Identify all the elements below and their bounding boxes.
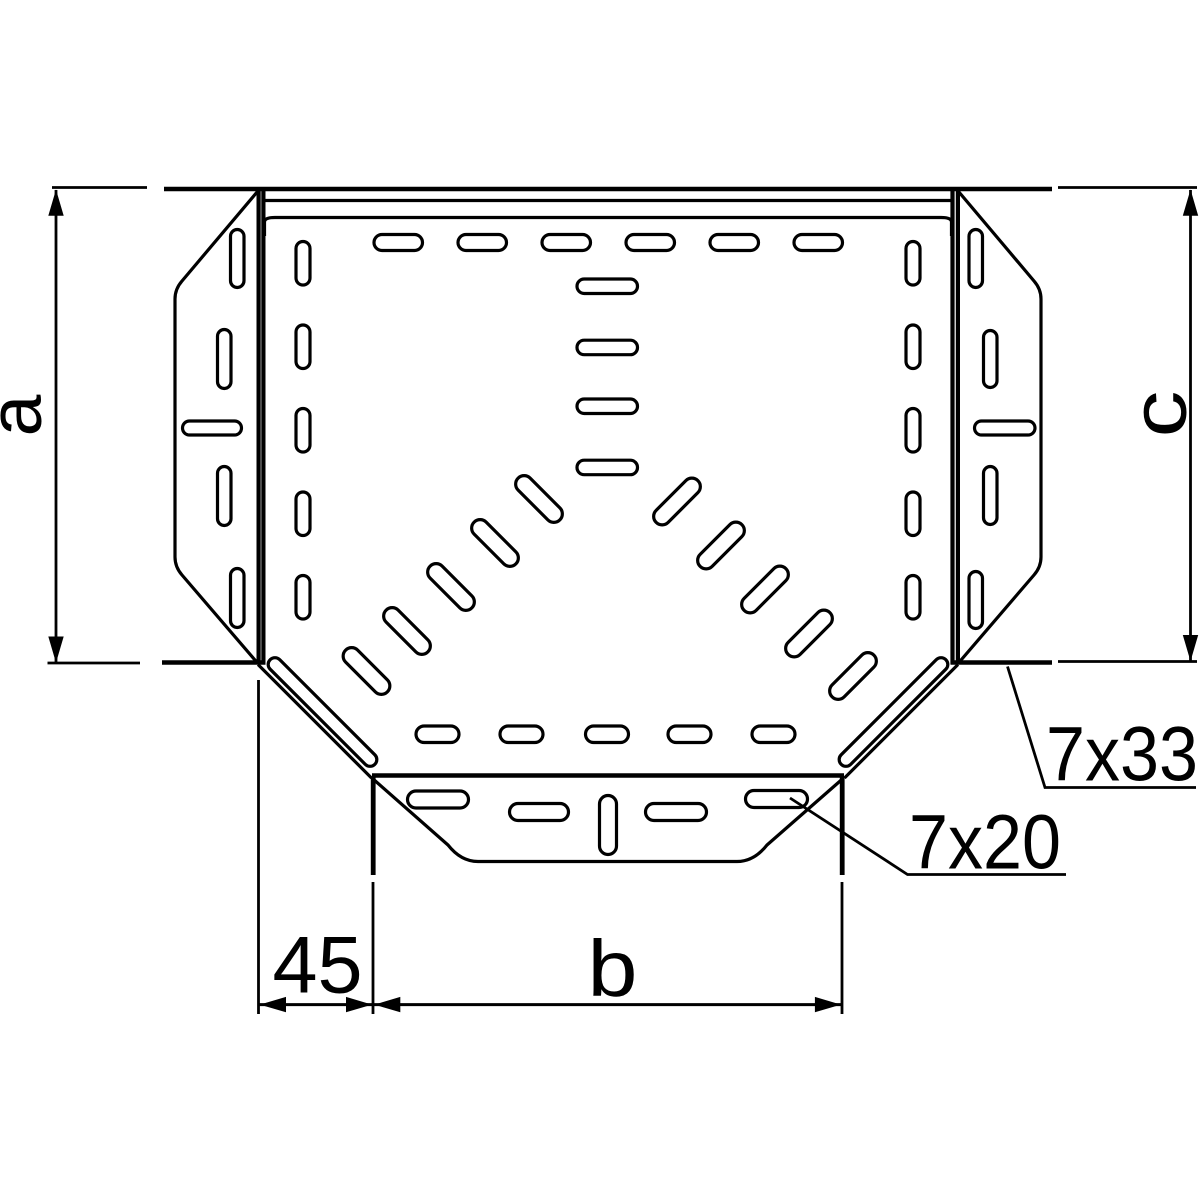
svg-text:b: b [588, 924, 638, 1013]
svg-text:7x20: 7x20 [909, 800, 1061, 886]
svg-text:c: c [1115, 391, 1200, 438]
svg-text:a: a [0, 394, 57, 436]
svg-text:45: 45 [272, 921, 362, 1011]
svg-text:7x33: 7x33 [1046, 712, 1198, 798]
